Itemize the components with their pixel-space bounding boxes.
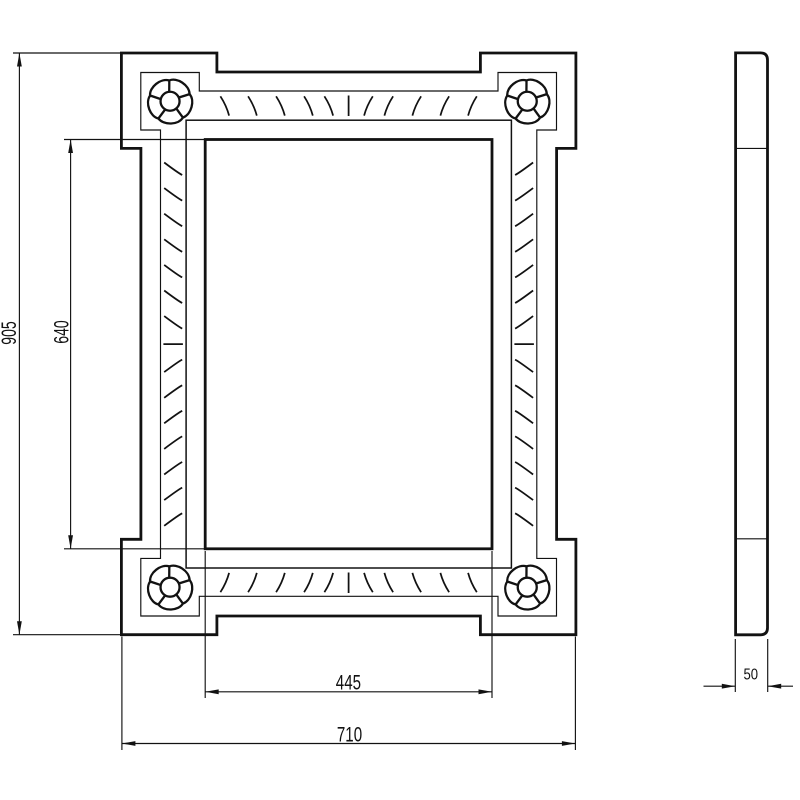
svg-text:640: 640 — [50, 320, 73, 344]
svg-text:445: 445 — [336, 670, 361, 694]
svg-text:710: 710 — [337, 722, 362, 746]
svg-text:905: 905 — [0, 321, 21, 345]
svg-text:50: 50 — [744, 666, 759, 683]
